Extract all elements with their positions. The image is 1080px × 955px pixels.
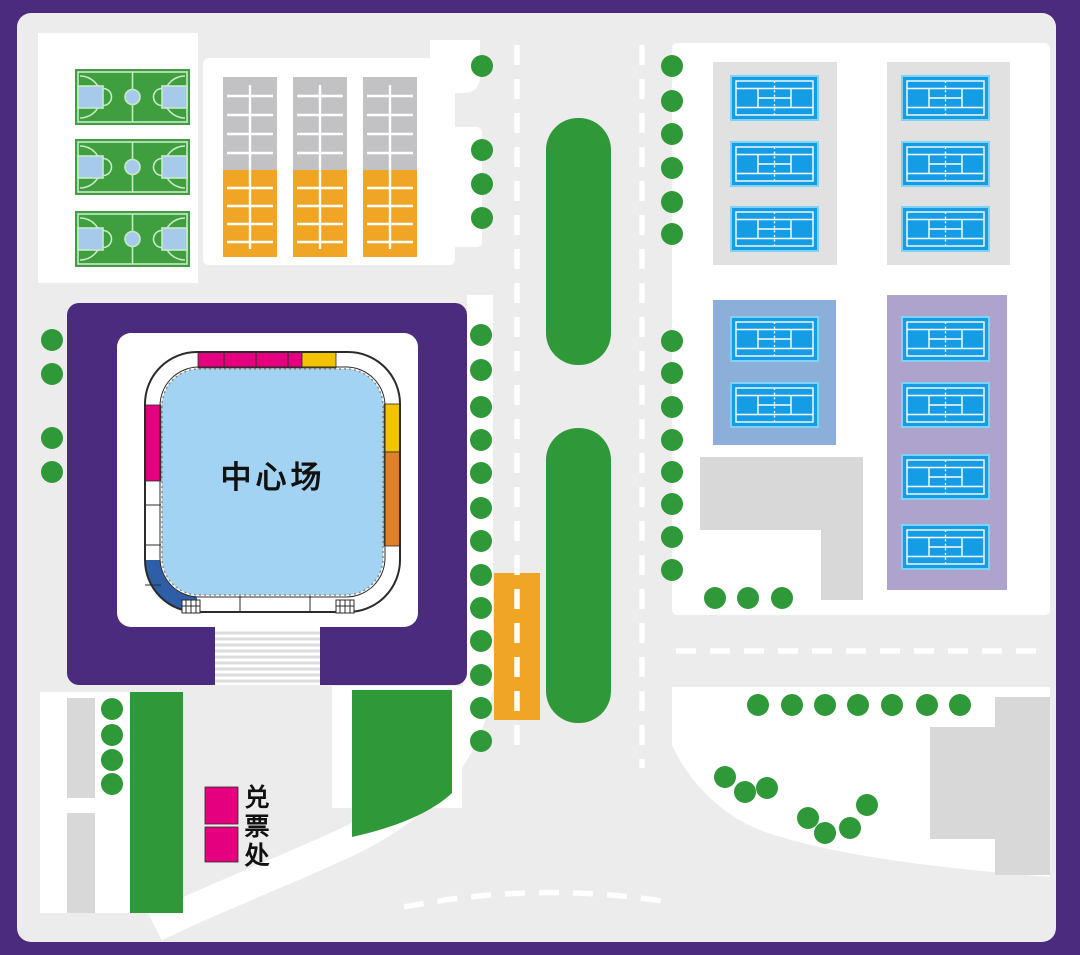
tree-icon <box>847 694 869 716</box>
tree-icon <box>41 363 63 385</box>
tennis-court <box>901 75 990 121</box>
tree-icon <box>737 587 759 609</box>
tree-icon <box>41 427 63 449</box>
tree-icon <box>949 694 971 716</box>
tree-icon <box>661 461 683 483</box>
tree-icon <box>101 749 123 771</box>
center-court-label: 中心场 <box>192 452 354 497</box>
tree-icon <box>856 794 878 816</box>
tree-icon <box>734 781 756 803</box>
tree-icon <box>471 207 493 229</box>
building <box>67 813 95 913</box>
tree-icon <box>661 330 683 352</box>
training-court <box>223 77 277 257</box>
seating-segment-magenta <box>198 352 302 368</box>
tree-icon <box>756 777 778 799</box>
tree-icon <box>661 429 683 451</box>
tennis-court <box>901 316 990 362</box>
road-median-strip <box>546 118 611 365</box>
tree-icon <box>101 698 123 720</box>
tree-icon <box>470 664 492 686</box>
tennis-court <box>901 454 990 500</box>
tree-icon <box>714 766 736 788</box>
tree-icon <box>470 359 492 381</box>
tree-icon <box>471 139 493 161</box>
ticket-booth <box>205 827 238 862</box>
tree-icon <box>471 55 493 77</box>
tree-icon <box>470 564 492 586</box>
ticket-booth <box>205 787 238 824</box>
tree-icon <box>661 123 683 145</box>
tree-icon <box>814 822 836 844</box>
building <box>930 727 995 839</box>
tennis-court <box>901 524 990 570</box>
tree-icon <box>470 697 492 719</box>
tennis-court <box>730 316 819 362</box>
tree-icon <box>470 630 492 652</box>
tennis-court <box>730 75 819 121</box>
tree-icon <box>470 497 492 519</box>
tree-icon <box>881 694 903 716</box>
grass-strip <box>130 692 183 913</box>
tree-icon <box>470 429 492 451</box>
seating-segment-magenta <box>145 405 161 481</box>
ticket-office-label: 兑票处 <box>240 784 270 874</box>
tennis-court <box>901 141 990 187</box>
basketball-court <box>75 139 190 195</box>
stadium-stairs <box>215 627 320 685</box>
tree-icon <box>771 587 793 609</box>
basketball-court <box>75 211 190 267</box>
training-court <box>293 77 347 257</box>
tree-icon <box>101 773 123 795</box>
tennis-court <box>730 141 819 187</box>
tree-icon <box>661 157 683 179</box>
tree-icon <box>781 694 803 716</box>
tree-icon <box>661 493 683 515</box>
tree-icon <box>470 462 492 484</box>
tennis-court <box>901 382 990 428</box>
tree-icon <box>41 329 63 351</box>
building <box>67 698 95 798</box>
site-map-canvas <box>0 0 1080 955</box>
tree-icon <box>661 396 683 418</box>
tennis-court <box>901 206 990 252</box>
seating-segment-orange <box>384 452 400 546</box>
tennis-court <box>730 382 819 428</box>
tree-icon <box>814 694 836 716</box>
tree-icon <box>470 597 492 619</box>
tree-icon <box>661 191 683 213</box>
tree-icon <box>471 173 493 195</box>
tree-icon <box>916 694 938 716</box>
tree-icon <box>661 90 683 112</box>
tree-icon <box>470 396 492 418</box>
tree-icon <box>661 526 683 548</box>
tennis-court <box>730 206 819 252</box>
tree-icon <box>839 817 861 839</box>
training-court <box>363 77 417 257</box>
tree-icon <box>101 724 123 746</box>
basketball-courts-group <box>75 69 190 267</box>
tree-icon <box>661 55 683 77</box>
tree-icon <box>661 559 683 581</box>
site-map: 中心场 兑票处 <box>0 0 1080 955</box>
tree-icon <box>704 587 726 609</box>
basketball-court <box>75 69 190 125</box>
tree-icon <box>797 807 819 829</box>
training-courts-group <box>223 77 417 257</box>
tree-icon <box>661 362 683 384</box>
building <box>995 697 1050 875</box>
tree-icon <box>747 694 769 716</box>
tree-icon <box>41 461 63 483</box>
tree-icon <box>661 223 683 245</box>
tree-icon <box>470 324 492 346</box>
seating-segment-yellow <box>384 404 400 452</box>
seating-segment-yellow <box>302 352 336 368</box>
road-median-strip <box>546 428 611 723</box>
tree-icon <box>470 530 492 552</box>
tree-icon <box>470 730 492 752</box>
